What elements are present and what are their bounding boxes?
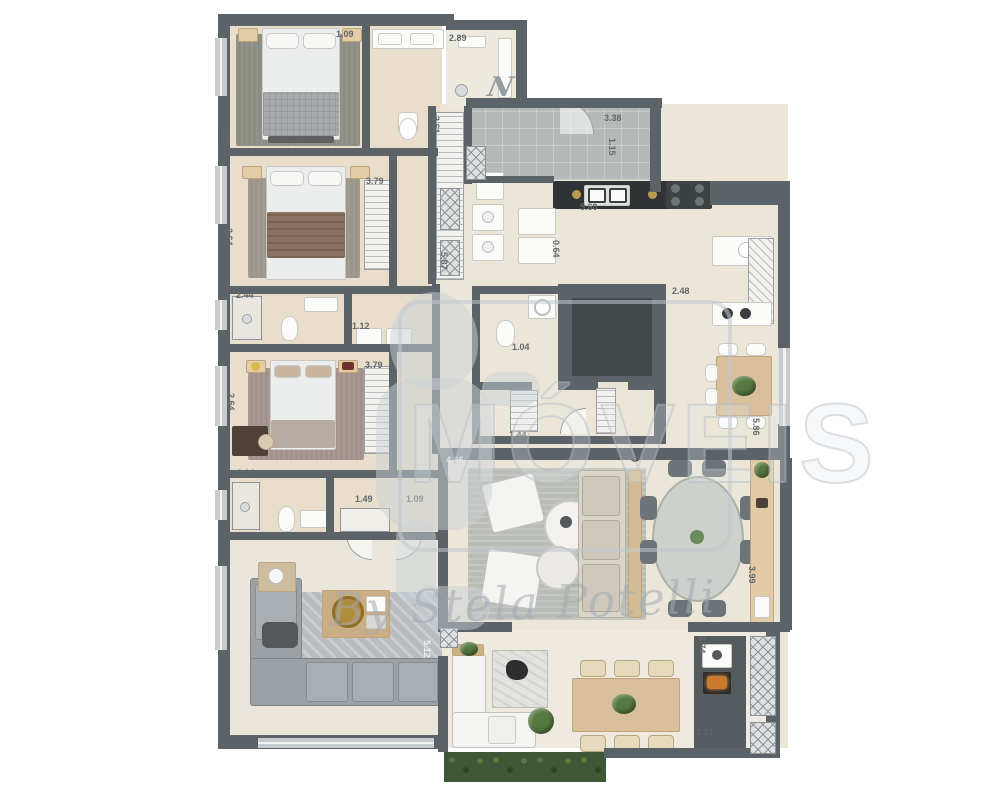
dimension-label: 1.49 [355, 494, 373, 504]
wall [432, 284, 440, 454]
wall [438, 448, 790, 460]
bedroom1-foot-bench [268, 136, 334, 143]
living-coffee-table-small [536, 546, 580, 590]
dimension-label: 1.44 [509, 430, 527, 440]
terrace-sofa-cushion [488, 716, 516, 744]
bedroom1-pillow-right [303, 33, 336, 49]
charcoal-embers [707, 676, 727, 689]
bedroom3-wardrobe [364, 366, 390, 454]
dining-chair-top-1 [668, 460, 692, 477]
wall [362, 24, 370, 150]
window [215, 166, 227, 224]
dimension-label: 0.64 [551, 240, 561, 258]
tv-sofa-throw [262, 622, 298, 648]
living-sofa-cushion-3 [582, 564, 620, 612]
dimension-label: 2.31 [696, 727, 714, 737]
window [215, 566, 227, 650]
cooktop-burner-1 [671, 184, 680, 193]
wall [650, 98, 661, 192]
terrace-chair-top-1 [580, 660, 606, 677]
dimension-label: 3.99 [747, 566, 757, 584]
living-coffee-table-decor [560, 516, 572, 528]
living-armchair-2 [480, 548, 544, 610]
bathroom3-toilet [278, 506, 295, 532]
wall [466, 98, 662, 108]
tv-sofa-cushion-1 [306, 662, 348, 702]
shower-bench [498, 38, 512, 98]
tv-sofa-cushion-3 [398, 662, 438, 702]
cooktop-burner-4 [695, 197, 704, 206]
gourmet-burner-1 [722, 308, 733, 319]
cooktop-burner-3 [671, 197, 680, 206]
fridge [518, 208, 556, 235]
wall [389, 152, 397, 290]
window [258, 738, 434, 748]
bathroom3-shower-head-icon [240, 502, 250, 512]
wall [446, 20, 526, 30]
window [215, 490, 227, 520]
dining-chair-bottom-1 [668, 600, 692, 617]
breakfast-chair-top-1 [718, 343, 738, 356]
breakfast-chair-top-2 [746, 343, 766, 356]
entry-hall-floor [468, 108, 650, 180]
bathroom1-sink-right [410, 33, 434, 45]
dimension-label: 2.89 [449, 33, 467, 43]
sideboard-plant-top [754, 462, 770, 478]
dimension-label: 5.86 [751, 418, 761, 436]
bedroom2-pillow-left [270, 171, 304, 186]
shaft-hatch [466, 146, 486, 180]
shaft-hatch [440, 628, 458, 648]
bedroom1-pillow-left [266, 33, 299, 49]
bedroom3-tv [342, 362, 354, 370]
tv-coffee-table-gold-bowl [332, 596, 364, 628]
dining-chair-left-1 [640, 496, 657, 520]
shaft-hatch [750, 636, 776, 716]
dark-room-floor [572, 298, 652, 376]
wall [472, 382, 480, 444]
sideboard-lamp [754, 596, 770, 618]
shaft-hatch [750, 722, 776, 754]
tv-coffee-table-books [366, 596, 386, 612]
tv-coffee-table-tray [366, 615, 386, 629]
breakfast-centerpiece-plant [732, 376, 756, 396]
wall [654, 340, 666, 444]
wall [472, 436, 662, 444]
service-ac-unit [510, 390, 538, 432]
shower-head-icon [455, 84, 468, 97]
wall [218, 14, 454, 26]
dimension-label: 5.87 [439, 252, 449, 270]
dimension-label: 2.04 [237, 468, 255, 478]
breakfast-chair-left-2 [705, 388, 718, 406]
dimension-label: 1.09 [406, 494, 424, 504]
dimension-label: 2.48 [672, 286, 690, 296]
kitchen-sink-basin-right [609, 188, 627, 203]
kitchen-sink-basin-left [588, 188, 606, 203]
terrace-chair-top-2 [614, 660, 640, 677]
terrace-plant-pot [528, 708, 554, 734]
bathroom2-shower-head-icon [242, 314, 252, 324]
dimension-label: 4.46 [446, 455, 464, 465]
cooktop-burner-2 [695, 184, 704, 193]
dimension-label: 3.79 [365, 360, 383, 370]
bedroom2-nightstand-left [242, 166, 262, 179]
terrace-chair-top-3 [648, 660, 674, 677]
dimension-label: 3.29 [221, 128, 231, 146]
bedroom2-pillow-right [308, 171, 342, 186]
tv-side-table-lamp [268, 568, 284, 584]
wall [780, 458, 792, 630]
bathroom1-sink-left [378, 33, 402, 45]
wall [222, 344, 436, 352]
bedroom3-foot-blanket [271, 420, 335, 448]
dining-chair-left-2 [640, 540, 657, 564]
living-sofa-cushion-2 [582, 520, 620, 560]
bedroom2-wardrobe [364, 180, 390, 270]
dimension-label: 5.60 [580, 202, 598, 212]
dimension-label: 3.38 [604, 113, 622, 123]
wall [516, 20, 527, 108]
terrace-dining-plant [612, 694, 636, 714]
terrace-plant-top [460, 642, 478, 656]
wall [472, 286, 566, 294]
gourmet-burner-2 [740, 308, 751, 319]
wall [222, 148, 438, 156]
dimension-label: 3.79 [366, 176, 384, 186]
shaft-hatch [440, 188, 460, 230]
dryer-door-icon [482, 241, 494, 253]
living-dining-centerpiece [690, 530, 704, 544]
bathroom1-toilet-bowl [399, 118, 417, 140]
floor-plan: 1.092.893.292.643.793.615.873.381.155.60… [0, 0, 1000, 794]
bedroom1-blanket [263, 92, 339, 136]
window [215, 300, 227, 330]
dining-chair-top-2 [702, 460, 726, 477]
sideboard-decor [756, 498, 768, 508]
dining-chair-bottom-2 [702, 600, 726, 617]
hall-closet [340, 508, 390, 532]
lavabo-round-basin [534, 299, 551, 316]
terrace-chair-bottom-1 [580, 735, 606, 752]
dimension-label: 1.04 [512, 342, 530, 352]
wall [344, 290, 352, 348]
bedroom3-pillow-left [274, 365, 301, 378]
wall [472, 286, 480, 390]
dimension-label: 1.15 [607, 138, 617, 156]
dimension-label: 2.64 [226, 393, 236, 411]
bedroom2-throw-blanket [267, 212, 345, 258]
wall [389, 352, 397, 476]
living-sofa-cushion-1 [582, 476, 620, 516]
dimension-label: 2.44 [236, 290, 254, 300]
breakfast-chair-left-1 [705, 364, 718, 382]
service-heater-unit [596, 388, 616, 434]
wall [326, 478, 334, 536]
bedroom3-lamp [251, 362, 260, 371]
dimension-label: 3.61 [431, 116, 441, 134]
terrace-table-sculpture [506, 660, 528, 680]
tv-sofa-cushion-2 [352, 662, 394, 702]
window [215, 38, 227, 96]
wall [438, 458, 448, 626]
washer-door-icon [482, 211, 494, 223]
grill-dial-icon [712, 650, 722, 660]
bedroom3-pillow-right [305, 365, 332, 378]
wall [472, 382, 532, 390]
dimension-label: 1.12 [352, 321, 370, 331]
bathroom2-vanity [304, 297, 338, 312]
dimension-label: 1.09 [336, 29, 354, 39]
dimension-label: 2.74 [697, 636, 707, 654]
breakfast-chair-bottom-1 [718, 416, 738, 429]
bathroom2-toilet [281, 316, 298, 341]
bedroom1-nightstand-left [238, 28, 258, 42]
wall [778, 198, 790, 348]
wall [222, 532, 442, 540]
hedge-planter [444, 752, 606, 782]
window [779, 348, 790, 426]
bedroom3-desk-chair [258, 434, 274, 450]
dimension-label: 2.64 [224, 228, 234, 246]
kitchen-faucet-left [572, 190, 581, 199]
dimension-label: 5.12 [422, 640, 432, 658]
wall [604, 748, 768, 758]
